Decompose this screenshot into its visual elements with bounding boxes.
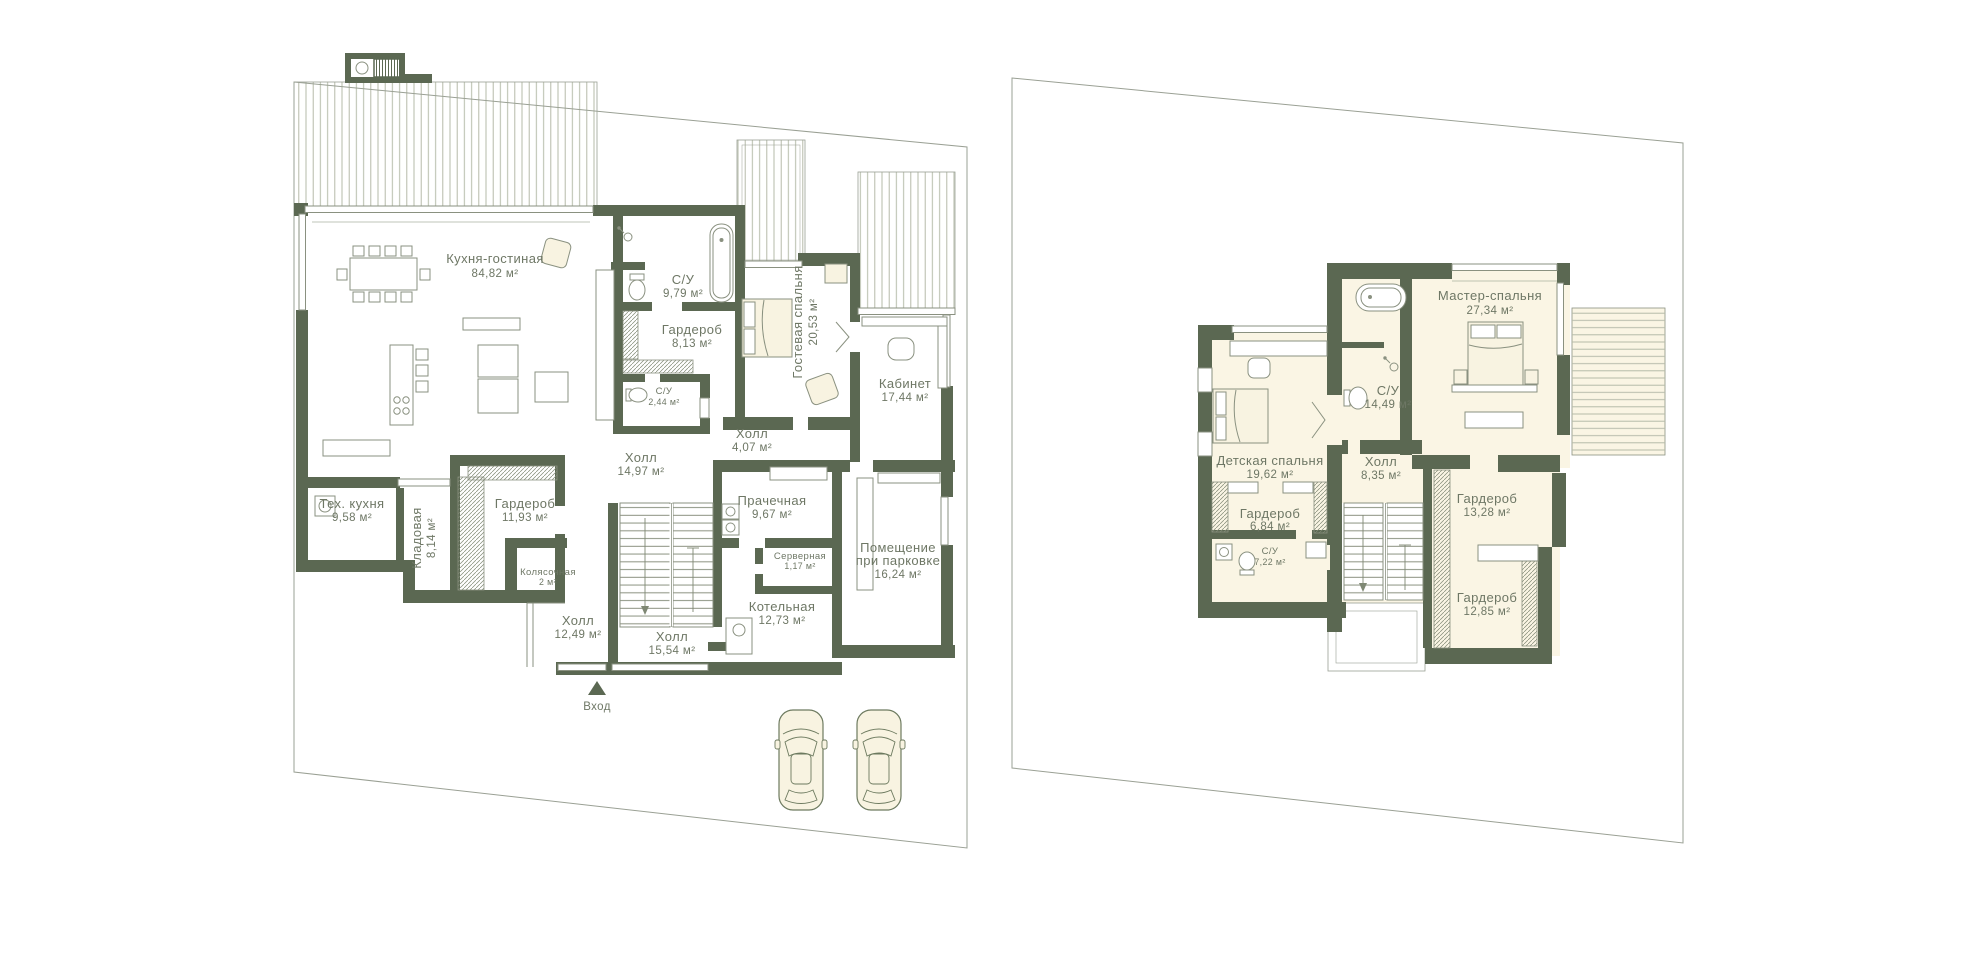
storage-shelf: [878, 473, 940, 483]
coffee-table: [535, 372, 568, 402]
roof-hatch-guestroom: [737, 140, 805, 265]
entrance-label: Вход: [583, 701, 611, 713]
svg-text:Холл: Холл: [625, 450, 657, 465]
svg-text:11,93 м²: 11,93 м²: [502, 512, 548, 524]
svg-text:Кухня-гостиная: Кухня-гостиная: [446, 251, 544, 266]
car-icon: [853, 710, 905, 810]
room-label-storage: Кладовая 8,14 м²: [409, 507, 438, 568]
svg-text:2 м²: 2 м²: [539, 577, 557, 587]
room-label-tech-kitchen: Тех. кухня 9,58 м²: [320, 496, 385, 524]
svg-text:Гардероб: Гардероб: [1457, 491, 1517, 506]
svg-text:9,67 м²: 9,67 м²: [752, 509, 792, 521]
door-gap: [555, 506, 565, 534]
room-label-hall-1497: Холл 14,97 м²: [618, 450, 665, 478]
svg-text:13,28 м²: 13,28 м²: [1464, 507, 1511, 519]
svg-text:Гардероб: Гардероб: [1240, 506, 1300, 521]
svg-text:19,62 м²: 19,62 м²: [1247, 469, 1294, 481]
entrance-arrow-icon: [588, 681, 606, 695]
svg-text:8,13 м²: 8,13 м²: [672, 338, 712, 350]
svg-text:при парковке: при парковке: [856, 553, 940, 568]
boiler-icon: [726, 618, 752, 654]
svg-text:8,35 м²: 8,35 м²: [1361, 470, 1401, 482]
svg-text:84,82 м²: 84,82 м²: [472, 268, 519, 280]
room-label-guest-bedroom: Гостевая спальня 20,53 м²: [790, 265, 820, 378]
dining-table: [337, 246, 430, 302]
svg-text:Гостевая спальня: Гостевая спальня: [790, 265, 805, 378]
room-label-wardrobe-1285: Гардероб 12,85 м²: [1457, 590, 1517, 618]
floor2-plan: Мастер-спальня 27,34 м² С/У 14,49 м² Хол…: [1012, 78, 1683, 843]
room-label-wardrobe-1328: Гардероб 13,28 м²: [1457, 491, 1517, 519]
chimney-block: [348, 56, 432, 83]
svg-text:Кабинет: Кабинет: [879, 376, 931, 391]
guest-bed: [742, 299, 792, 357]
svg-text:Детская спальня: Детская спальня: [1216, 453, 1323, 468]
door-swing-chevron-icon: [836, 322, 849, 352]
armchair: [540, 237, 572, 269]
desk: [1230, 341, 1327, 356]
car-icon: [775, 710, 827, 810]
bathtub-icon: [1356, 284, 1406, 311]
desk-chair: [888, 338, 914, 360]
dresser: [1465, 412, 1523, 428]
svg-text:Тех. кухня: Тех. кухня: [320, 496, 385, 511]
tv-sideboard: [463, 318, 520, 330]
svg-text:Холл: Холл: [656, 629, 688, 644]
floor1-plan: Кухня-гостиная 84,82 м² С/У 9,79 м² Гард…: [294, 56, 967, 848]
room-label-bathroom-979: С/У 9,79 м²: [663, 272, 703, 300]
room-label-hall-1554: Холл 15,54 м²: [649, 629, 696, 657]
svg-text:17,44 м²: 17,44 м²: [882, 392, 929, 404]
room-label-boiler-room: Котельная 12,73 м²: [749, 599, 816, 627]
room-label-stroller-room: Колясочная 2 м²: [520, 567, 576, 587]
svg-text:16,24 м²: 16,24 м²: [875, 569, 922, 581]
svg-text:Холл: Холл: [736, 426, 768, 441]
armchair: [804, 372, 839, 406]
flue-icon: [356, 62, 368, 74]
roof-hatch-office: [858, 172, 955, 312]
closet-shelf: [1478, 545, 1538, 561]
svg-text:15,54 м²: 15,54 м²: [649, 645, 696, 657]
svg-text:12,73 м²: 12,73 м²: [759, 615, 806, 627]
svg-text:8,14 м²: 8,14 м²: [426, 518, 438, 558]
kitchen-island: [390, 345, 428, 425]
room-label-kitchen-living: Кухня-гостиная 84,82 м²: [446, 251, 544, 280]
svg-text:Гардероб: Гардероб: [1457, 590, 1517, 605]
svg-text:С/У: С/У: [656, 386, 673, 397]
washing-machine-icon: [722, 504, 739, 535]
terrace-hatch: [1572, 308, 1665, 455]
svg-text:Прачечная: Прачечная: [738, 493, 807, 508]
room-label-server-room: Серверная 1,17 м²: [774, 551, 826, 571]
svg-text:27,34 м²: 27,34 м²: [1467, 305, 1514, 317]
svg-text:14,49 м²: 14,49 м²: [1365, 399, 1412, 411]
shelving: [323, 440, 390, 456]
svg-text:12,49 м²: 12,49 м²: [555, 629, 602, 641]
closet-shelf: [1228, 482, 1258, 493]
washing-machine-icon: [1216, 544, 1232, 560]
room-label-wardrobe-813: Гардероб 8,13 м²: [662, 322, 722, 350]
svg-text:12,85 м²: 12,85 м²: [1464, 606, 1511, 618]
svg-text:9,79 м²: 9,79 м²: [663, 288, 703, 300]
sofa: [478, 345, 518, 413]
kitchen-counter: [596, 270, 614, 420]
toilet-icon: [629, 274, 645, 300]
svg-text:4,07 м²: 4,07 м²: [732, 442, 772, 454]
bed-bench: [1452, 385, 1537, 392]
washbasin-icon: [1306, 542, 1326, 558]
staircase-floor1: [618, 503, 713, 627]
svg-text:Холл: Холл: [1365, 454, 1397, 469]
room-label-wardrobe-1193: Гардероб 11,93 м²: [495, 496, 555, 524]
svg-text:Мастер-спальня: Мастер-спальня: [1438, 288, 1542, 303]
svg-text:1,17 м²: 1,17 м²: [784, 561, 815, 571]
room-label-laundry: Прачечная 9,67 м²: [738, 493, 807, 521]
svg-text:7,22 м²: 7,22 м²: [1254, 557, 1285, 567]
master-bed: [1468, 322, 1523, 385]
toilet-icon: [1239, 552, 1255, 575]
svg-text:Котельная: Котельная: [749, 599, 816, 614]
svg-text:С/У: С/У: [1377, 383, 1400, 398]
staircase-floor2: [1342, 503, 1423, 600]
vent-grille-icon: [374, 59, 400, 77]
nightstand: [1525, 370, 1538, 384]
svg-text:Гардероб: Гардероб: [495, 496, 555, 511]
svg-text:6,84 м²: 6,84 м²: [1250, 521, 1290, 533]
storage-shelf: [857, 478, 873, 590]
room-label-hall-1249: Холл 12,49 м²: [555, 613, 602, 641]
roof-hatch-main: [294, 82, 597, 207]
bathtub-icon: [710, 224, 733, 302]
floorplan-page: Кухня-гостиная 84,82 м² С/У 9,79 м² Гард…: [0, 0, 1980, 953]
room-label-office: Кабинет 17,44 м²: [879, 376, 931, 404]
svg-text:С/У: С/У: [1262, 546, 1279, 557]
room-label-bathroom-244: С/У 2,44 м²: [648, 386, 679, 407]
room-label-hall-835: Холл 8,35 м²: [1361, 454, 1401, 482]
kids-bed: [1213, 389, 1268, 443]
floorplan-drawing: Кухня-гостиная 84,82 м² С/У 9,79 м² Гард…: [0, 0, 1980, 953]
laundry-shelf: [770, 467, 827, 480]
svg-text:Холл: Холл: [562, 613, 594, 628]
svg-text:Кладовая: Кладовая: [409, 507, 424, 568]
toilet-icon: [626, 388, 647, 402]
desk-chair: [1248, 358, 1270, 378]
room-label-hall-407: Холл 4,07 м²: [732, 426, 772, 454]
svg-text:9,58 м²: 9,58 м²: [332, 512, 372, 524]
svg-text:С/У: С/У: [672, 272, 695, 287]
svg-text:Гардероб: Гардероб: [662, 322, 722, 337]
nightstand: [825, 264, 847, 283]
nightstand: [1454, 370, 1467, 384]
svg-text:20,53 м²: 20,53 м²: [808, 299, 820, 346]
svg-text:14,97 м²: 14,97 м²: [618, 466, 665, 478]
closet-shelf: [1283, 482, 1313, 493]
svg-text:2,44 м²: 2,44 м²: [648, 397, 679, 407]
